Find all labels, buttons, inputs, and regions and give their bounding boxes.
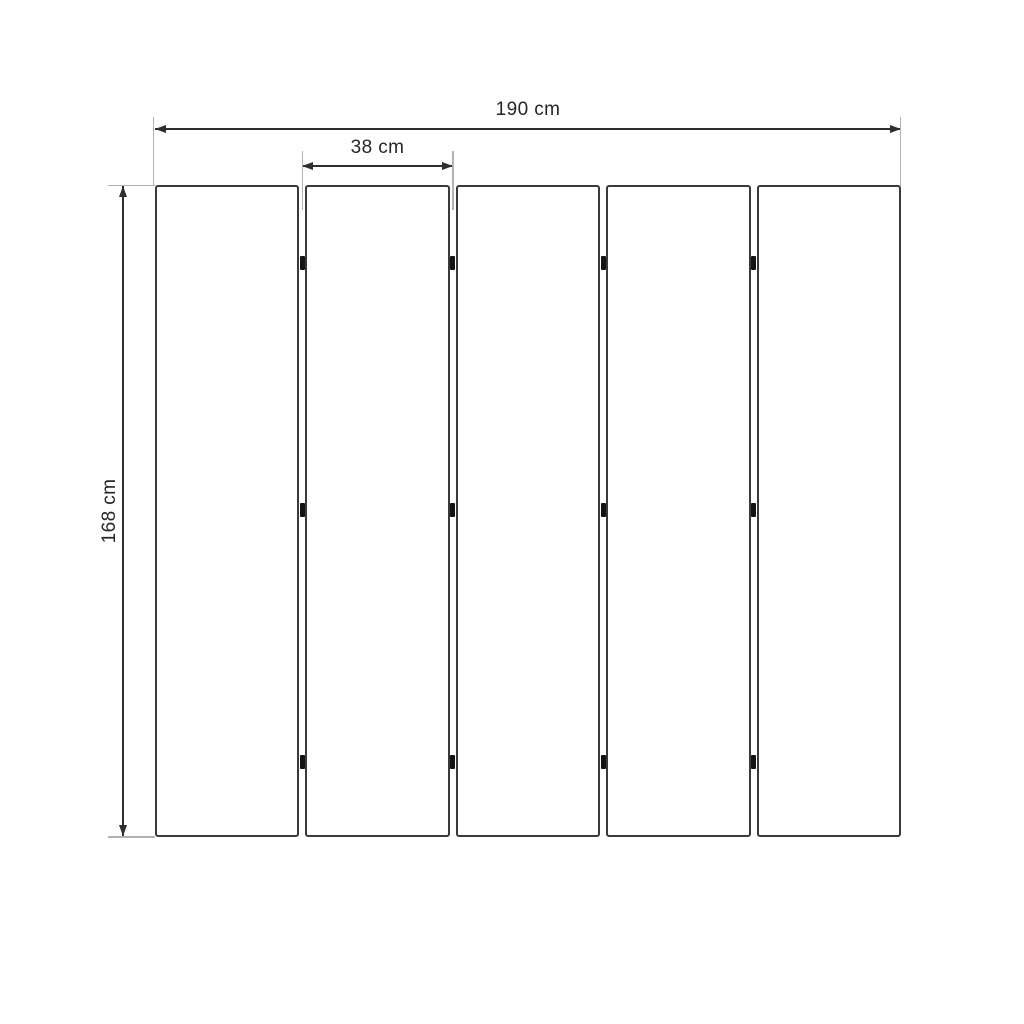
panel-width-dimension-line bbox=[302, 165, 453, 167]
panel-2 bbox=[305, 185, 449, 837]
hinge-joint2-3 bbox=[450, 755, 455, 769]
extension-line-height-bottom bbox=[108, 836, 155, 838]
hinge-joint4-1 bbox=[751, 256, 756, 270]
panel-4 bbox=[606, 185, 750, 837]
hinge-joint3-2 bbox=[601, 503, 606, 517]
panel-3 bbox=[456, 185, 600, 837]
extension-line-total-right bbox=[900, 117, 902, 186]
hinge-joint2-2 bbox=[450, 503, 455, 517]
hinge-joint2-1 bbox=[450, 256, 455, 270]
height-dimension-label: 168 cm bbox=[98, 479, 122, 544]
hinge-joint1-1 bbox=[300, 256, 305, 270]
hinge-joint4-2 bbox=[751, 503, 756, 517]
dimension-diagram-canvas: 190 cm 38 cm 168 cm bbox=[0, 0, 1024, 1024]
panel-1 bbox=[155, 185, 299, 837]
total-width-dimension-label: 190 cm bbox=[156, 98, 900, 122]
panel-row bbox=[155, 185, 901, 837]
hinge-joint4-3 bbox=[751, 755, 756, 769]
hinge-joint3-1 bbox=[601, 256, 606, 270]
total-width-dimension-line bbox=[155, 128, 901, 130]
height-dimension-line bbox=[122, 186, 124, 836]
extension-line-total-left bbox=[153, 117, 155, 186]
panel-5 bbox=[757, 185, 901, 837]
hinge-joint1-3 bbox=[300, 755, 305, 769]
extension-line-height-top bbox=[108, 185, 155, 187]
panel-width-dimension-label: 38 cm bbox=[302, 136, 453, 160]
hinge-joint3-3 bbox=[601, 755, 606, 769]
hinge-joint1-2 bbox=[300, 503, 305, 517]
